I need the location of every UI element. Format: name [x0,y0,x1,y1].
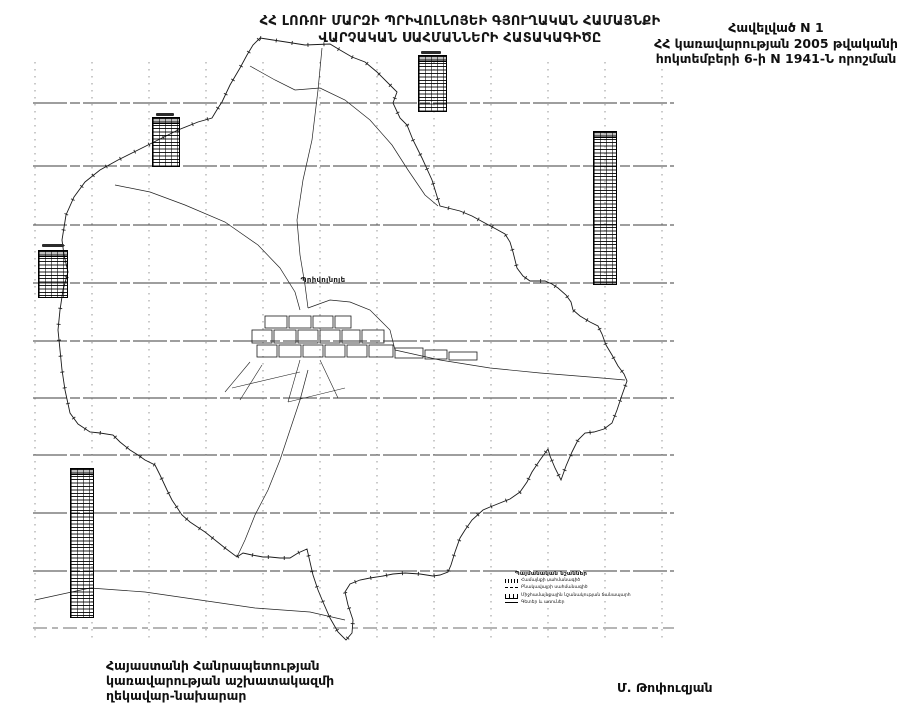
coordinate-table-left-upper [152,117,180,167]
map-legend: Պայմանական նշաններ Համայնքի սահմանագիծ Բ… [505,571,597,609]
page-title-line1: ՀՀ ԼՈՌՈՒ ՄԱՐԶԻ ՊՐԻՎՈԼՆՈՅԵԻ ԳՅՈՒՂԱԿԱՆ ՀԱՄ… [235,14,685,31]
legend-item-label: Համայնքի սահմանագիծ [521,579,580,584]
settlement-label: Պրիվոլնոյե [288,276,358,284]
boundary-line-symbol [505,579,518,583]
legend-item-label: Բնակավայրի սահմանագիծ [521,586,588,591]
grid-horizontal-lines [33,103,674,628]
table-caption-smudge [421,51,441,54]
road-center-east-link [308,300,395,350]
signature-line1: Հայաստանի Հանրապետության [106,658,406,673]
annex-line2: ՀՀ կառավարության 2005 թվականի [642,36,910,52]
river-northeast [250,66,438,206]
grid-vertical-lines [35,62,662,640]
annex-line1: Հավելված N 1 [642,20,910,36]
table-header [419,56,446,62]
legend-item: Բնակավայրի սահմանագիծ [505,585,597,592]
legend-item: Գետեր և առուներ [505,600,597,607]
legend-item: Համայնքի սահմանագիծ [505,579,597,584]
dashed-line-symbol [505,587,518,592]
boundary-line [58,38,627,640]
annex-reference: Հավելված N 1 ՀՀ կառավարության 2005 թվակա… [642,20,910,67]
table-header [71,469,93,475]
page-title-line2: ՎԱՐՉԱԿԱՆ ՍԱՀՄԱՆՆԵՐԻ ՀԱՏԱԿԱԳԻԾԸ [235,31,685,48]
river-north [297,48,322,308]
table-caption-smudge [156,113,174,116]
settlement-blocks [252,316,477,360]
boundary-tick-marks [58,38,627,640]
settlement-street-lines [225,360,345,402]
legend-item-label: Միջհամայնքային նշանակության ճանապարհ [521,594,631,599]
signer-name: Մ. Թոփուզյան [617,680,713,695]
rivers-and-roads [35,48,625,620]
coordinate-table-left-middle [38,250,68,298]
table-header [594,132,616,138]
legend-item: Միջհամայնքային նշանակության ճանապարհ [505,594,597,599]
table-caption-smudge [42,244,64,247]
community-boundary [58,38,627,640]
coordinate-table-right-tall [593,131,617,285]
road-nw-to-center [115,185,300,310]
signature-line3: ղեկավար-նախարար [106,688,406,703]
table-header [39,251,67,257]
scanned-map-page: ՀՀ ԼՈՌՈՒ ՄԱՐԶԻ ՊՐԻՎՈԼՆՈՅԵԻ ԳՅՈՒՂԱԿԱՆ ՀԱՄ… [0,0,915,727]
thin-line-symbol [505,602,518,607]
legend-item-label: Գետեր և առուներ [521,601,565,606]
signature-line2: կառավարության աշխատակազմի [106,673,406,688]
annex-line3: հոկտեմբերի 6-ի N 1941-Ն որոշման [642,51,910,67]
table-header [153,118,179,124]
cross-line-symbol [505,594,518,599]
map-canvas [0,0,915,727]
road-east [395,350,625,380]
coordinate-table-top-center [418,55,447,112]
signature-block: Հայաստանի Հանրապետության կառավարության ա… [106,658,406,703]
legend-title: Պայմանական նշաններ [505,571,597,577]
coordinate-table-bottom-left [70,468,94,618]
page-title: ՀՀ ԼՈՌՈՒ ՄԱՐԶԻ ՊՐԻՎՈԼՆՈՅԵԻ ԳՅՈՒՂԱԿԱՆ ՀԱՄ… [235,14,685,48]
